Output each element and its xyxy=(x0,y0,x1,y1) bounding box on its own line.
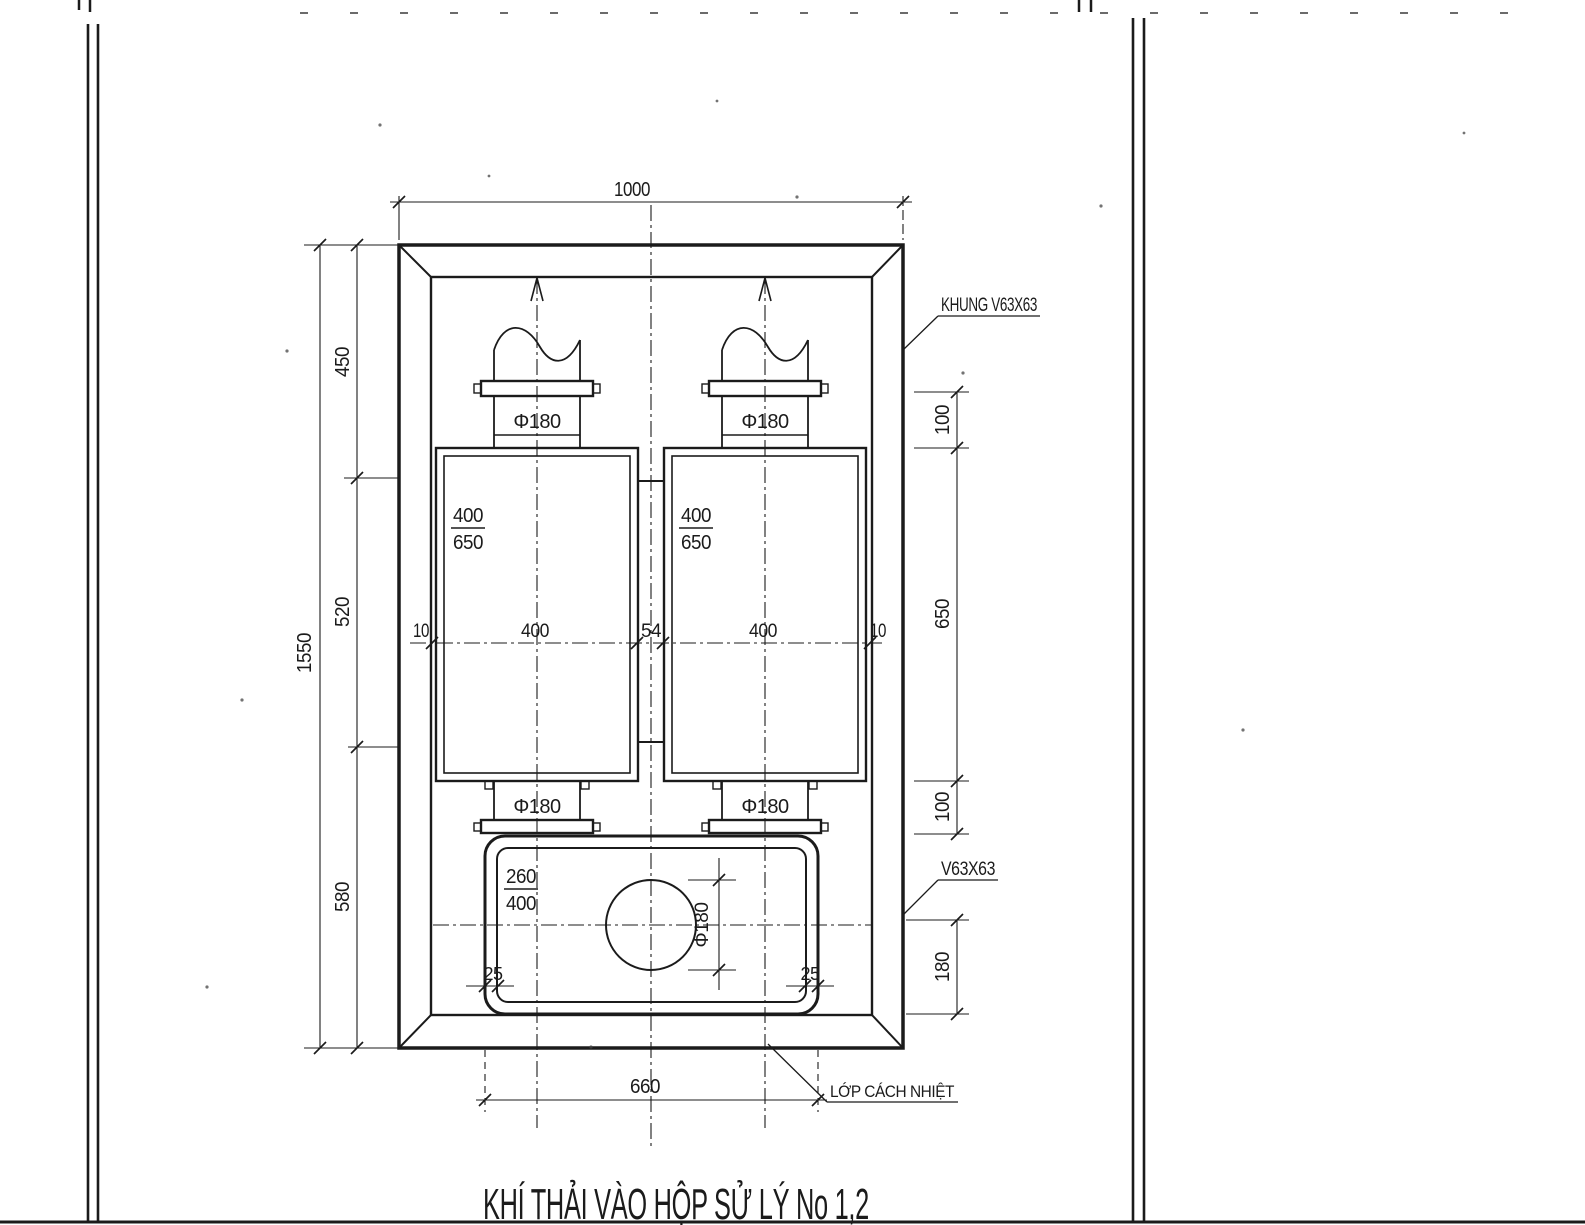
pipe-diameter-label: Φ180 xyxy=(513,411,561,433)
chamber-fraction-num: 400 xyxy=(681,505,711,527)
right-segment-label: 650 xyxy=(932,599,954,629)
left-segment-label: 450 xyxy=(332,347,354,377)
outlet-fraction-den: 400 xyxy=(506,893,536,915)
mid-dim-label: 400 xyxy=(749,621,777,642)
pipe-diameter-label: Φ180 xyxy=(513,796,561,818)
bottom-width-label: 660 xyxy=(630,1076,660,1098)
mid-dim-label: 10 xyxy=(413,621,429,642)
callout-angle-bar: V63X63 xyxy=(904,859,998,914)
pipe-diameter-label: Φ180 xyxy=(692,903,713,948)
mid-dim-label: 10 xyxy=(870,621,886,642)
dim-corner-radius-left: 25 xyxy=(466,964,514,992)
dim-outlet-circle: Φ180 xyxy=(688,858,736,990)
dim-right-chain: 100 650 100 180 xyxy=(906,386,969,1020)
top-width-label: 1000 xyxy=(614,179,650,201)
insulation-callout-label: LỚP CÁCH NHIỆT xyxy=(830,1082,954,1101)
dim-mid-row: 10 400 54 400 10 xyxy=(413,621,886,649)
right-segment-label: 100 xyxy=(932,792,954,822)
outlet-fraction-num: 260 xyxy=(506,866,536,888)
right-segment-label: 100 xyxy=(932,405,954,435)
left-overall-label: 1550 xyxy=(294,633,316,673)
dim-left-chain: 450 520 580 xyxy=(304,239,399,1054)
dim-corner-radius-right: 25 xyxy=(786,964,834,992)
right-segment-label: 180 xyxy=(932,952,954,982)
left-segment-label: 520 xyxy=(332,597,354,627)
scanned-drawing-page: Φ180 Φ180 400 650 400 650 Φ18 xyxy=(0,0,1585,1225)
mid-dim-label: 400 xyxy=(521,621,549,642)
corner-radius-label: 25 xyxy=(483,964,503,984)
chamber-fraction-num: 400 xyxy=(453,505,483,527)
mid-dim-label: 54 xyxy=(641,621,662,642)
page-border-right xyxy=(1079,0,1144,1222)
chamber-fraction-den: 650 xyxy=(681,532,711,554)
angle-bar-callout-label: V63X63 xyxy=(941,859,995,880)
page-border-left xyxy=(79,0,98,1222)
dim-left-overall: 1550 xyxy=(294,239,326,1054)
callout-insulation: LỚP CÁCH NHIỆT xyxy=(768,1044,958,1102)
frame-callout-label: KHUNG V63X63 xyxy=(941,295,1037,316)
drawing-title: KHÍ THẢI VÀO HỘP SỬ LÝ No 1,2 xyxy=(483,1178,869,1225)
pipe-diameter-label: Φ180 xyxy=(741,796,789,818)
scan-speckles xyxy=(205,100,1465,1049)
pipe-diameter-label: Φ180 xyxy=(741,411,789,433)
chamber-fraction-den: 650 xyxy=(453,532,483,554)
callout-frame: KHUNG V63X63 xyxy=(903,295,1040,350)
left-segment-label: 580 xyxy=(332,882,354,912)
